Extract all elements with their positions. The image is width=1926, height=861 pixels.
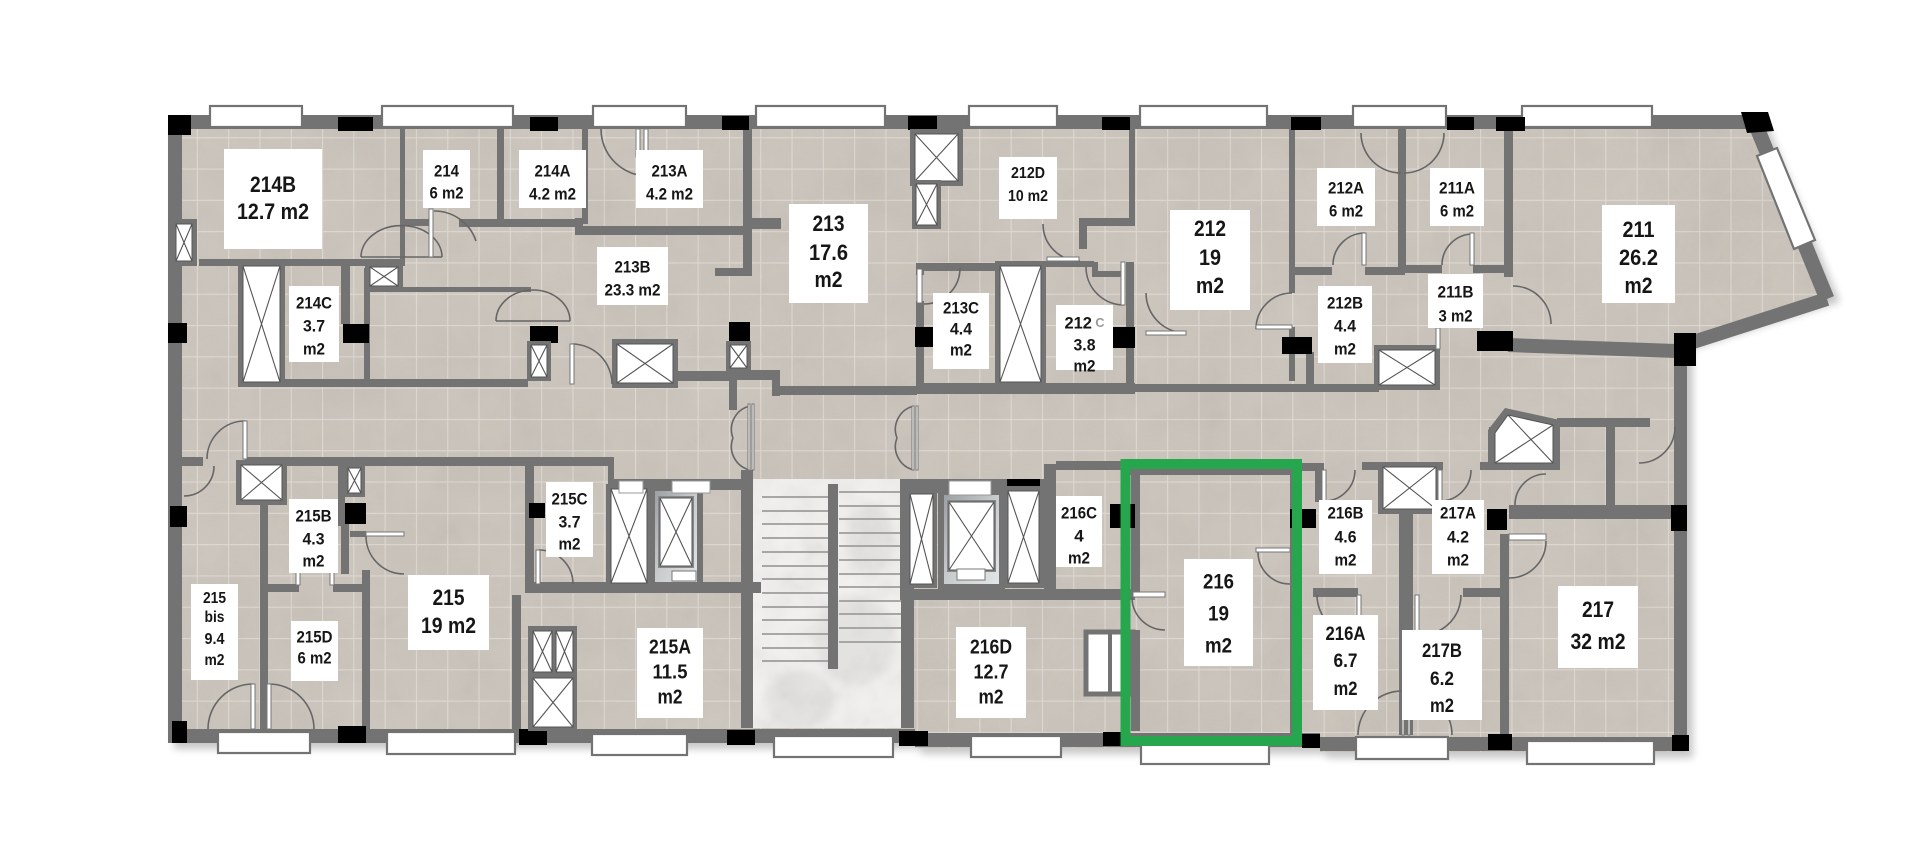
- svg-text:216B: 216B: [1328, 503, 1364, 522]
- svg-text:4.4: 4.4: [1334, 316, 1356, 335]
- svg-text:212 C: 212 C: [1065, 313, 1106, 332]
- svg-text:215B: 215B: [296, 506, 332, 525]
- svg-text:19 m2: 19 m2: [421, 613, 476, 638]
- svg-text:m2: m2: [1196, 273, 1224, 298]
- svg-text:215: 215: [203, 590, 226, 607]
- svg-text:216: 216: [1203, 571, 1234, 594]
- svg-text:m2: m2: [1334, 679, 1358, 700]
- svg-text:216A: 216A: [1326, 624, 1366, 645]
- svg-text:3.8: 3.8: [1074, 335, 1096, 354]
- svg-text:m2: m2: [1430, 696, 1454, 717]
- svg-text:10 m2: 10 m2: [1008, 188, 1048, 205]
- svg-text:212D: 212D: [1011, 165, 1045, 182]
- svg-text:4.2 m2: 4.2 m2: [529, 184, 576, 203]
- svg-text:12.7 m2: 12.7 m2: [237, 199, 309, 224]
- svg-text:4.3: 4.3: [303, 529, 325, 548]
- svg-text:6 m2: 6 m2: [298, 648, 332, 667]
- svg-text:m2: m2: [303, 339, 325, 358]
- svg-text:4.6: 4.6: [1335, 527, 1357, 546]
- svg-text:bis: bis: [205, 609, 225, 626]
- svg-text:212: 212: [1194, 216, 1226, 241]
- svg-text:215D: 215D: [297, 627, 333, 646]
- svg-text:211: 211: [1623, 217, 1655, 242]
- svg-text:213A: 213A: [652, 161, 688, 180]
- svg-text:213B: 213B: [615, 257, 651, 276]
- svg-text:m2: m2: [1335, 550, 1357, 569]
- svg-text:217B: 217B: [1422, 641, 1462, 662]
- svg-text:m2: m2: [1205, 635, 1232, 658]
- svg-text:217A: 217A: [1440, 503, 1476, 522]
- svg-text:12.7: 12.7: [974, 661, 1009, 683]
- svg-text:213: 213: [813, 211, 845, 236]
- svg-text:214C: 214C: [296, 293, 332, 312]
- svg-text:214: 214: [434, 161, 459, 180]
- svg-text:215A: 215A: [649, 636, 691, 658]
- svg-text:m2: m2: [303, 551, 325, 570]
- svg-text:9.4: 9.4: [205, 631, 225, 648]
- svg-text:215C: 215C: [552, 489, 588, 508]
- svg-text:m2: m2: [979, 686, 1004, 708]
- svg-text:26.2: 26.2: [1619, 245, 1658, 270]
- svg-text:215: 215: [433, 585, 465, 610]
- svg-text:m2: m2: [1334, 339, 1356, 358]
- svg-text:214A: 214A: [535, 161, 571, 180]
- svg-text:4.2: 4.2: [1447, 527, 1469, 546]
- svg-text:19: 19: [1208, 603, 1229, 626]
- svg-text:6 m2: 6 m2: [1329, 201, 1363, 220]
- svg-text:212A: 212A: [1328, 178, 1364, 197]
- svg-text:32 m2: 32 m2: [1571, 629, 1626, 654]
- svg-text:m2: m2: [1625, 273, 1653, 298]
- svg-text:m2: m2: [815, 267, 843, 292]
- svg-text:6 m2: 6 m2: [1440, 201, 1474, 220]
- svg-text:11.5: 11.5: [653, 661, 688, 683]
- svg-text:213C: 213C: [943, 298, 979, 317]
- svg-text:m2: m2: [950, 340, 972, 359]
- svg-text:211B: 211B: [1438, 282, 1474, 301]
- svg-text:17.6: 17.6: [809, 240, 848, 265]
- svg-text:m2: m2: [658, 686, 683, 708]
- svg-text:214B: 214B: [250, 172, 296, 197]
- svg-text:m2: m2: [559, 534, 581, 553]
- svg-text:4.2 m2: 4.2 m2: [646, 184, 693, 203]
- svg-text:3.7: 3.7: [559, 512, 581, 531]
- svg-text:6.2: 6.2: [1430, 669, 1454, 690]
- svg-text:m2: m2: [205, 652, 225, 669]
- svg-text:216C: 216C: [1061, 503, 1097, 522]
- svg-text:216D: 216D: [970, 636, 1012, 658]
- svg-text:m2: m2: [1074, 356, 1096, 375]
- svg-text:217: 217: [1582, 597, 1614, 622]
- svg-text:m2: m2: [1447, 550, 1469, 569]
- svg-text:211A: 211A: [1439, 178, 1475, 197]
- svg-text:3 m2: 3 m2: [1439, 306, 1473, 325]
- svg-text:4: 4: [1074, 526, 1084, 545]
- svg-text:19: 19: [1199, 245, 1221, 270]
- svg-text:6 m2: 6 m2: [430, 183, 464, 202]
- svg-text:6.7: 6.7: [1334, 651, 1358, 672]
- svg-text:23.3 m2: 23.3 m2: [605, 280, 661, 299]
- svg-text:212B: 212B: [1327, 293, 1363, 312]
- svg-text:3.7: 3.7: [303, 316, 325, 335]
- svg-text:4.4: 4.4: [950, 319, 972, 338]
- svg-text:m2: m2: [1068, 548, 1090, 567]
